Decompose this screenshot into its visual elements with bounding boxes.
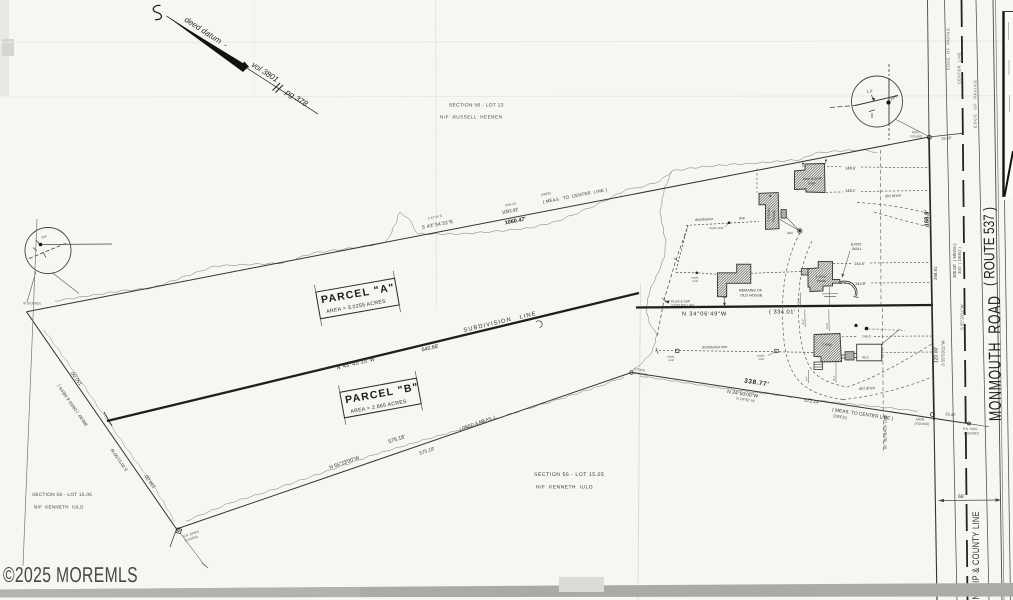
svg-text:P.K. NAIL: P.K. NAIL [963,427,978,431]
svg-text:( ROUTE 537 ): ( ROUTE 537 ) [981,207,999,286]
svg-text:line: line [739,216,745,220]
svg-text:N/F RUSSELL HEEREN: N/F RUSSELL HEEREN [440,115,502,120]
svg-text:268.91: 268.91 [933,266,938,280]
svg-text:tank: tank [759,357,765,361]
svg-text:31.8': 31.8' [825,323,829,329]
svg-text:31.2': 31.2' [801,319,805,325]
svg-text:50' SETBACK LINE: 50' SETBACK LINE [884,414,888,449]
svg-text:66': 66' [958,494,965,500]
svg-text:144.5': 144.5' [854,261,865,266]
svg-text:EXISTING LINE: EXISTING LINE [672,304,695,308]
svg-text:OLD HOUSE: OLD HOUSE [741,294,763,298]
svg-text:SECTION 56 - LOT 13: SECTION 56 - LOT 13 [449,103,504,109]
svg-text:WALL: WALL [852,247,862,251]
svg-text:N/F KENNETH IULO: N/F KENNETH IULO [536,485,593,491]
svg-text:EDGE OF PAVING: EDGE OF PAVING [973,79,978,128]
svg-text:CENTER LINE: CENTER LINE [957,52,962,84]
svg-text:FOUND: FOUND [911,135,923,139]
svg-text:SECTION 56 - LOT 15.05: SECTION 56 - LOT 15.05 [534,472,604,478]
svg-text:dirt drive: dirt drive [859,385,876,391]
svg-text:N/F KENNETH IULO: N/F KENNETH IULO [34,505,84,510]
svg-text:tank: tank [669,358,675,362]
svg-text:MONMOUTH ROAD: MONMOUTH ROAD [985,295,1005,421]
svg-text:(FOUND): (FOUND) [915,422,930,426]
svg-text:septic tank: septic tank [709,226,724,230]
svg-text:REMAINS OF: REMAINS OF [739,289,763,293]
svg-text:SECTION 56 - LOT 15.05: SECTION 56 - LOT 15.05 [32,492,92,497]
svg-text:120.00': 120.00' [934,347,940,363]
svg-text:8.4': 8.4' [804,376,808,381]
svg-text:148.1': 148.1' [845,188,856,193]
svg-text:EXIST: EXIST [851,243,862,247]
svg-text:tank: tank [693,279,699,283]
svg-text:shop: shop [808,181,816,185]
svg-text:well: well [787,231,793,235]
svg-text:house: house [817,279,826,283]
svg-text:146.6': 146.6' [862,335,871,339]
svg-text:...... ....: ...... .... [871,326,880,330]
svg-text:S 55°53'11"W: S 55°53'11"W [941,340,946,366]
svg-text:144.9': 144.9' [855,281,866,286]
svg-text:barn & work: barn & work [803,176,822,181]
svg-text:1 story: 1 story [822,343,832,347]
svg-text:300' ( DEED ): 300' ( DEED ) [957,247,962,274]
svg-text:148.6': 148.6' [845,165,856,170]
svg-text:S 55°33'11"W: S 55°33'11"W [960,304,965,330]
svg-text:dirt drive: dirt drive [885,193,902,199]
svg-text:N 34°06'49"W: N 34°06'49"W [682,312,727,318]
svg-text:IP (FOUND): IP (FOUND) [23,302,41,306]
svg-text:MON.: MON. [916,418,925,422]
svg-text:30.2': 30.2' [797,298,801,304]
svg-text:30.1': 30.1' [832,375,836,381]
svg-text:EDGE OF PAVING: EDGE OF PAVING [946,28,951,70]
svg-text:45.1': 45.1' [862,356,870,360]
svg-text:©2025 MOREMLS: ©2025 MOREMLS [3,563,138,587]
svg-text:distribution line: distribution line [702,345,727,349]
svg-text:168.9': 168.9' [924,209,931,226]
